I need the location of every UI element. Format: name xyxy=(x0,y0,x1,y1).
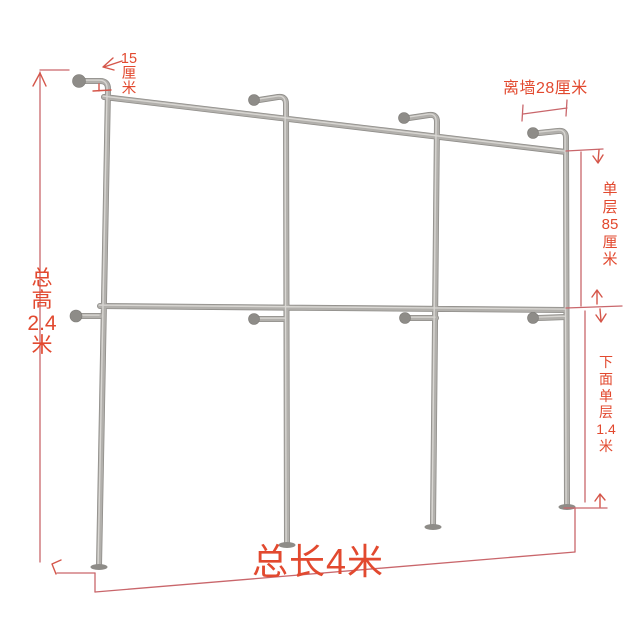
dim-wall-distance-line xyxy=(522,100,567,121)
wall-flange-mid-3 xyxy=(400,313,411,324)
wall-flanges-mid xyxy=(70,310,539,325)
pipes-base-layer xyxy=(81,81,567,566)
arrow-upper-layer-down xyxy=(593,150,603,163)
dim-mid-rail-tick xyxy=(566,306,622,308)
label-total-height: 总 高 2.4 米 xyxy=(23,268,61,358)
label-total-length: 总长4米 xyxy=(252,533,422,585)
floor-flange-3 xyxy=(425,524,442,530)
label-wall-distance: 离墙28厘米 xyxy=(503,74,599,98)
wall-flange-mid-1 xyxy=(70,310,82,322)
floor-flange-4 xyxy=(559,504,576,510)
label-top-offset: 15 厘 米 xyxy=(115,52,143,97)
arrow-height-bottom xyxy=(52,560,61,574)
dim-upper-layer-top-tick xyxy=(566,149,603,151)
wall-flange-top-2 xyxy=(249,95,260,106)
floor-flange-1 xyxy=(91,564,108,570)
wall-flange-mid-2 xyxy=(249,314,260,325)
wall-flange-top-3 xyxy=(399,113,410,124)
label-upper-layer: 单 层 85 厘 米 xyxy=(596,181,624,269)
wall-flange-top-1 xyxy=(73,75,86,88)
pipes-shadow-layer xyxy=(81,81,567,566)
arrow-lower-layer-down xyxy=(596,309,606,322)
pipes-highlight-layer xyxy=(80,80,566,565)
wall-flange-mid-4 xyxy=(528,313,539,324)
label-lower-layer: 下 面 单 层 1.4 米 xyxy=(591,354,621,455)
arrow-upper-layer-up xyxy=(592,290,602,304)
wall-flange-top-4 xyxy=(528,128,539,139)
product-dimension-diagram: 15 厘 米 离墙28厘米 总 高 2.4 米 单 层 85 厘 米 下 面 单… xyxy=(0,0,640,640)
pipe-structure xyxy=(80,80,567,566)
dimension-arrows xyxy=(33,58,606,574)
arrow-lower-layer-up xyxy=(595,494,605,507)
